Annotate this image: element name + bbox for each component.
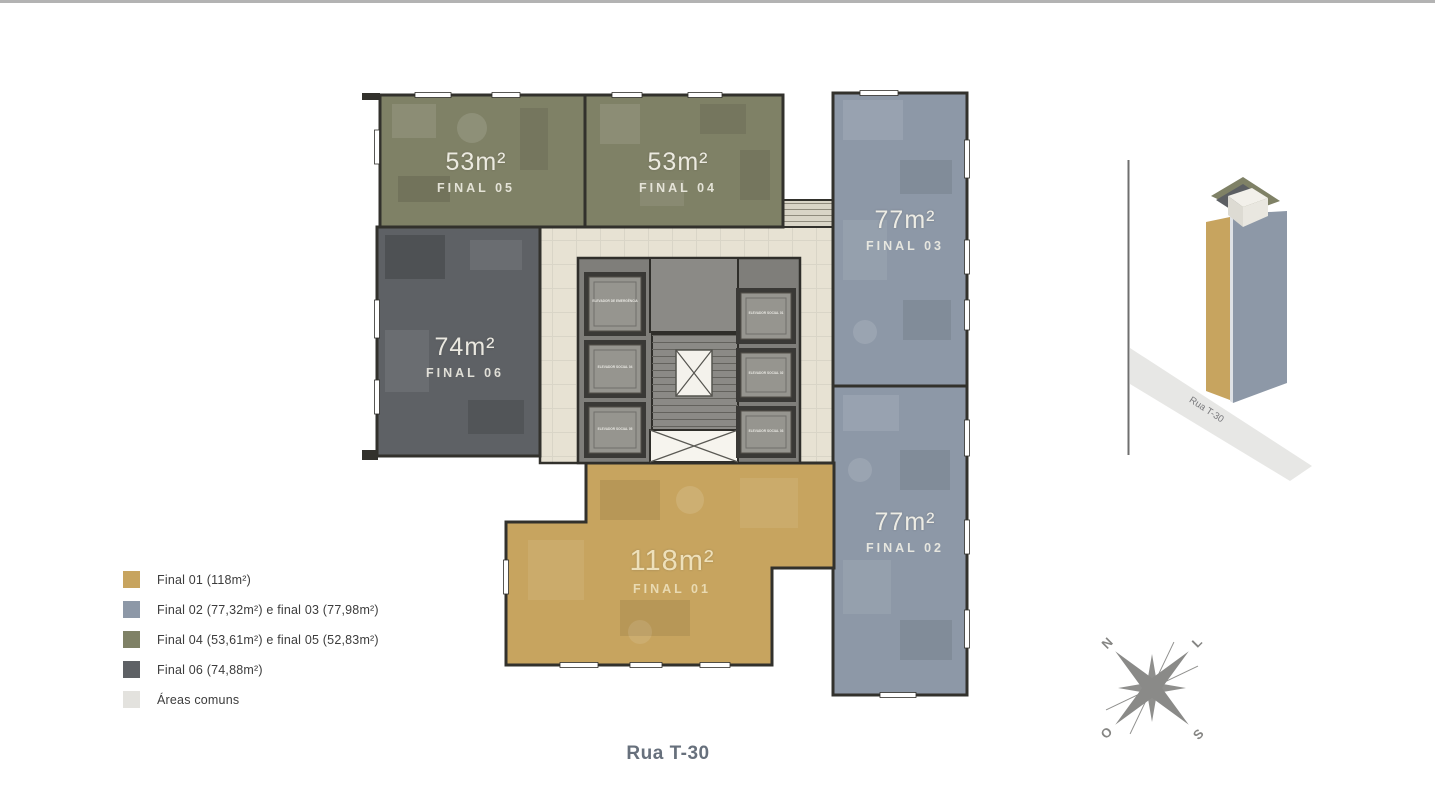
core-top-room — [650, 258, 738, 332]
floor-plan: ELEVADOR DE EMERGÊNCIA ELEVADOR SOCIAL 0… — [362, 91, 970, 698]
legend-label: Final 02 (77,32m²) e final 03 (77,98m²) — [157, 603, 379, 617]
legend-label: Final 01 (118m²) — [157, 573, 251, 587]
svg-text:ELEVADOR DE EMERGÊNCIA: ELEVADOR DE EMERGÊNCIA — [592, 298, 638, 303]
legend-item-final04-05: Final 04 (53,61m²) e final 05 (52,83m²) — [123, 631, 379, 648]
building-core: ELEVADOR DE EMERGÊNCIA ELEVADOR SOCIAL 0… — [578, 258, 800, 463]
shaft-x — [650, 430, 738, 462]
legend-label: Final 04 (53,61m²) e final 05 (52,83m²) — [157, 633, 379, 647]
building-face-gray — [1233, 211, 1287, 403]
elevator-social-04: ELEVADOR SOCIAL 04 — [584, 340, 646, 398]
compass-s: S — [1190, 726, 1207, 743]
legend: Final 01 (118m²) Final 02 (77,32m²) e fi… — [123, 571, 379, 721]
legend-label: Áreas comuns — [157, 693, 239, 707]
unit-final02-region — [833, 386, 967, 695]
street-label: Rua T-30 — [626, 743, 709, 765]
building-minimap: Rua T-30 — [1129, 160, 1313, 481]
elevator-social-03: ELEVADOR SOCIAL 03 — [736, 406, 796, 458]
isometric-building — [1206, 177, 1287, 403]
legend-item-areas-comuns: Áreas comuns — [123, 691, 379, 708]
legend-swatch — [123, 601, 140, 618]
legend-swatch — [123, 631, 140, 648]
legend-swatch — [123, 661, 140, 678]
svg-text:ELEVADOR SOCIAL 04: ELEVADOR SOCIAL 04 — [598, 365, 633, 369]
svg-text:ELEVADOR SOCIAL 02: ELEVADOR SOCIAL 02 — [749, 371, 784, 375]
legend-item-final01: Final 01 (118m²) — [123, 571, 379, 588]
unit-final05-region — [380, 95, 585, 227]
legend-swatch — [123, 571, 140, 588]
legend-swatch — [123, 691, 140, 708]
compass-rose: N L S O — [1053, 590, 1252, 789]
svg-text:ELEVADOR SOCIAL 05: ELEVADOR SOCIAL 05 — [598, 427, 633, 431]
elevator-social-02: ELEVADOR SOCIAL 02 — [736, 348, 796, 402]
svg-text:ELEVADOR SOCIAL 01: ELEVADOR SOCIAL 01 — [749, 311, 784, 315]
unit-final04-region — [585, 95, 783, 227]
legend-label: Final 06 (74,88m²) — [157, 663, 263, 677]
compass-o: O — [1098, 724, 1116, 742]
compass-l: L — [1189, 634, 1205, 650]
legend-item-final06: Final 06 (74,88m²) — [123, 661, 379, 678]
building-face-tan — [1206, 217, 1230, 400]
stairwell — [652, 334, 738, 432]
elevator-emergency: ELEVADOR DE EMERGÊNCIA — [584, 272, 646, 336]
unit-final06-region — [377, 227, 540, 456]
svg-text:ELEVADOR SOCIAL 03: ELEVADOR SOCIAL 03 — [749, 429, 784, 433]
elevator-social-01: ELEVADOR SOCIAL 01 — [736, 288, 796, 344]
legend-item-final02-03: Final 02 (77,32m²) e final 03 (77,98m²) — [123, 601, 379, 618]
unit-final03-region — [833, 93, 967, 386]
compass-n: N — [1098, 634, 1115, 651]
elevator-social-05: ELEVADOR SOCIAL 05 — [584, 402, 646, 458]
unit-final01-region — [506, 463, 834, 665]
